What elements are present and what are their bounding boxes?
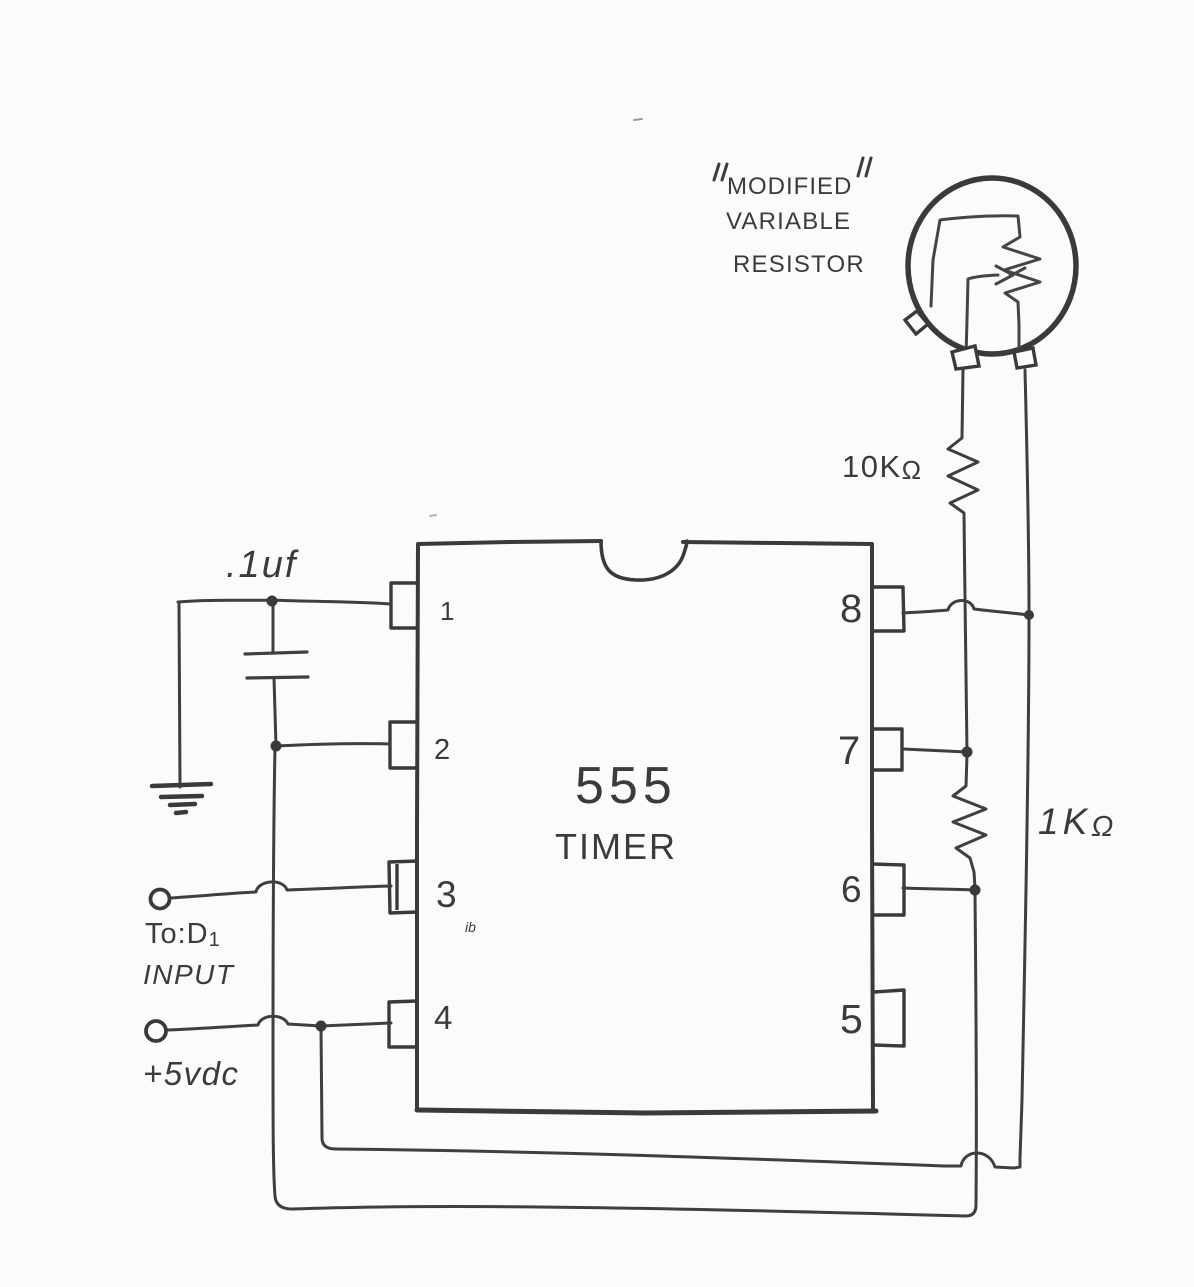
- svg-text:10KΩ: 10KΩ: [842, 449, 923, 485]
- svg-text:RESISTOR: RESISTOR: [733, 251, 865, 278]
- svg-text:TIMER: TIMER: [555, 826, 677, 867]
- svg-text:8: 8: [840, 587, 862, 631]
- svg-text:7: 7: [838, 729, 860, 773]
- svg-text:5: 5: [840, 996, 863, 1042]
- svg-text:VARIABLE: VARIABLE: [726, 208, 851, 235]
- svg-text:ib: ib: [465, 919, 476, 935]
- svg-text:INPUT: INPUT: [143, 959, 235, 990]
- svg-text:6: 6: [841, 869, 862, 910]
- svg-text:+5vdc: +5vdc: [143, 1055, 239, 1092]
- svg-text:.1uf: .1uf: [226, 544, 299, 586]
- svg-text:MODIFIED: MODIFIED: [727, 173, 852, 200]
- svg-text:2: 2: [434, 734, 450, 766]
- svg-text:4: 4: [434, 999, 452, 1036]
- svg-text:3: 3: [436, 874, 457, 915]
- svg-text:555: 555: [575, 757, 677, 815]
- svg-text:1: 1: [440, 596, 454, 626]
